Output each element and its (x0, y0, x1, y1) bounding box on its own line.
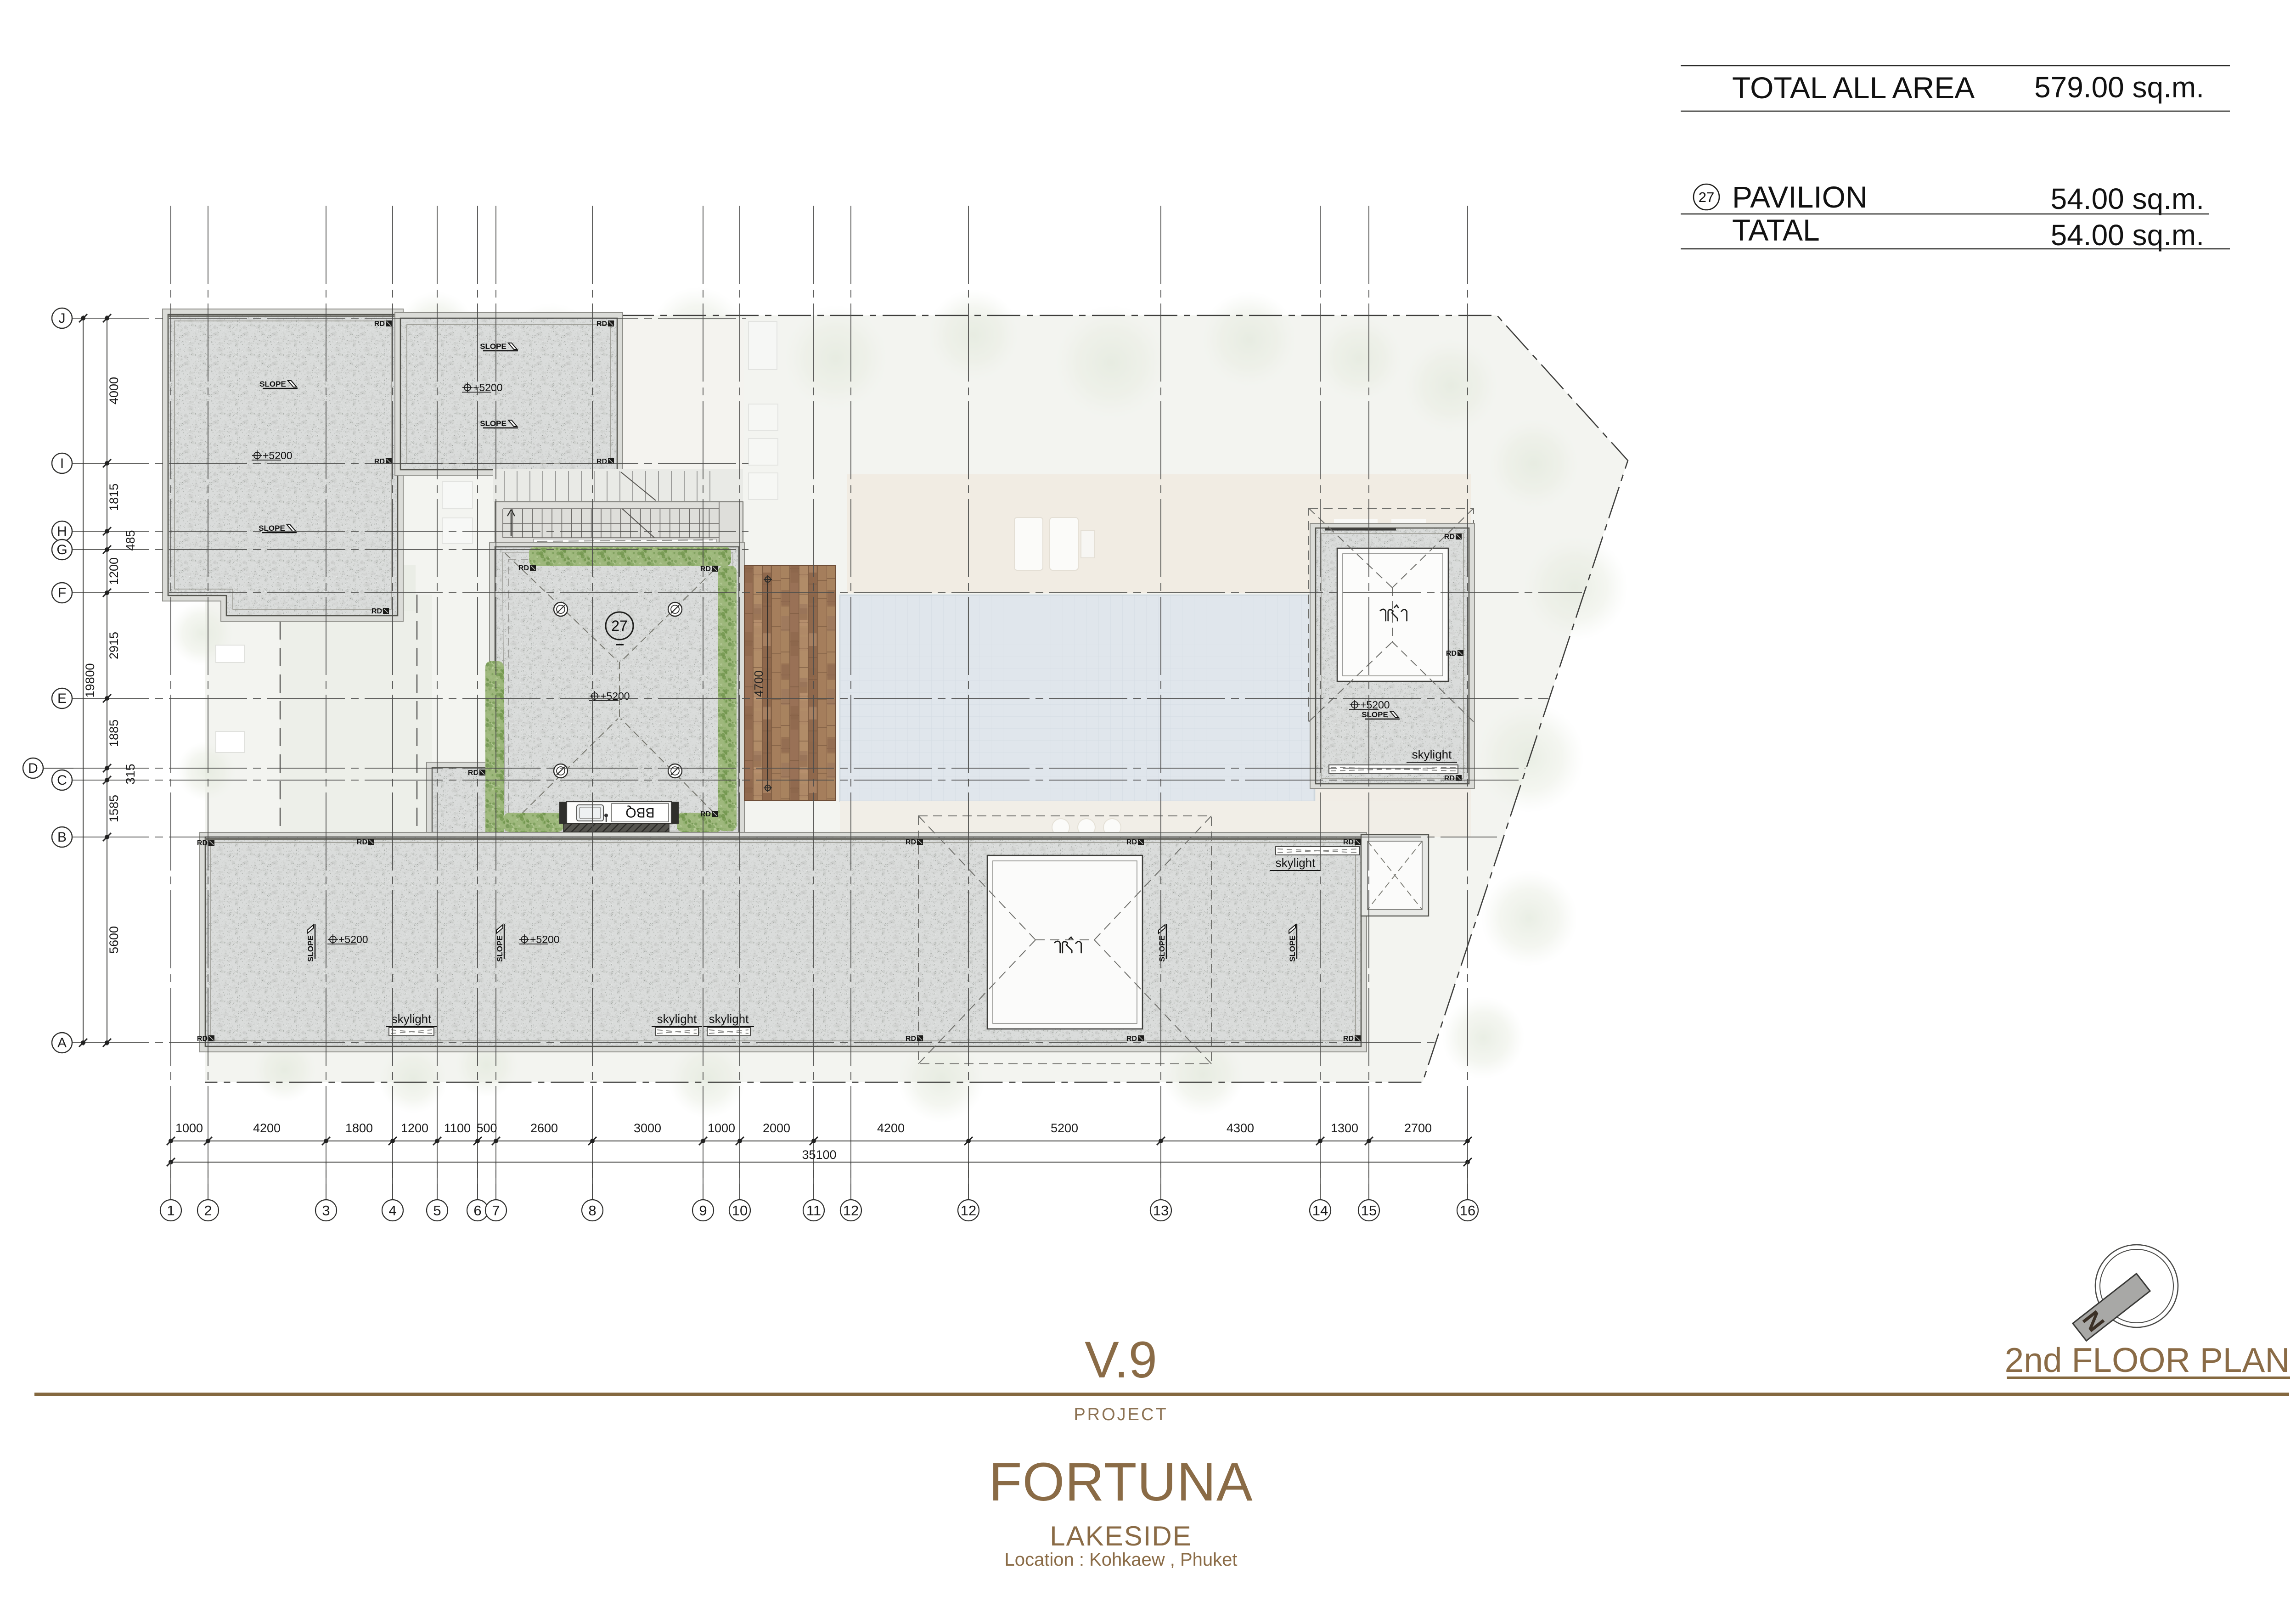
svg-text:RD: RD (1343, 1035, 1354, 1043)
svg-text:SLOPE: SLOPE (306, 935, 315, 962)
svg-text:15: 15 (1361, 1202, 1377, 1219)
svg-text:2: 2 (204, 1202, 212, 1219)
svg-text:500: 500 (476, 1121, 497, 1135)
svg-text:PAVILION: PAVILION (1732, 180, 1868, 214)
svg-text:4200: 4200 (253, 1121, 281, 1135)
svg-text:F: F (58, 585, 66, 601)
svg-text:FORTUNA: FORTUNA (989, 1452, 1253, 1512)
svg-text:C: C (57, 773, 67, 788)
svg-text:RD: RD (1444, 533, 1455, 541)
svg-text:RD: RD (518, 564, 529, 572)
svg-text:skylight: skylight (1276, 856, 1316, 870)
svg-text:RD: RD (374, 320, 385, 328)
svg-text:+5200: +5200 (338, 933, 368, 945)
svg-text:V.9: V.9 (1085, 1331, 1157, 1388)
svg-text:10: 10 (732, 1202, 748, 1219)
svg-text:1200: 1200 (401, 1121, 428, 1135)
svg-text:RD: RD (197, 839, 208, 847)
svg-text:13: 13 (1153, 1202, 1169, 1219)
svg-text:12: 12 (961, 1202, 976, 1219)
svg-text:1000: 1000 (175, 1121, 203, 1135)
svg-text:4000: 4000 (107, 377, 121, 405)
svg-text:SLOPE: SLOPE (1362, 710, 1388, 719)
svg-text:35100: 35100 (802, 1148, 836, 1162)
svg-text:SLOPE: SLOPE (495, 935, 504, 962)
svg-text:2000: 2000 (763, 1121, 790, 1135)
svg-text:RD: RD (468, 769, 478, 777)
svg-text:19800: 19800 (83, 663, 97, 697)
svg-text:5200: 5200 (1051, 1121, 1078, 1135)
svg-text:315: 315 (124, 764, 137, 784)
svg-text:54.00 sq.m.: 54.00 sq.m. (2051, 182, 2204, 215)
svg-text:4200: 4200 (877, 1121, 905, 1135)
svg-text:579.00 sq.m.: 579.00 sq.m. (2034, 71, 2204, 104)
svg-text:SLOPE: SLOPE (1158, 935, 1166, 962)
svg-text:Location : Kohkaew , Phuket: Location : Kohkaew , Phuket (1005, 1550, 1238, 1570)
svg-text:2600: 2600 (530, 1121, 558, 1135)
svg-text:D: D (28, 761, 38, 776)
svg-text:TOTAL ALL AREA: TOTAL ALL AREA (1732, 71, 1975, 105)
svg-text:skylight: skylight (657, 1012, 697, 1026)
svg-text:I: I (60, 456, 64, 471)
svg-text:RD: RD (1343, 838, 1354, 846)
svg-text:1800: 1800 (345, 1121, 373, 1135)
svg-text:RD: RD (374, 458, 385, 466)
svg-text:RD: RD (700, 565, 711, 573)
svg-text:1000: 1000 (708, 1121, 735, 1135)
svg-text:4700: 4700 (752, 670, 765, 697)
svg-text:RD: RD (906, 838, 916, 846)
svg-text:RD: RD (1446, 650, 1457, 657)
svg-text:RD: RD (197, 1035, 208, 1043)
svg-text:8: 8 (588, 1202, 596, 1219)
svg-text:RD: RD (700, 810, 711, 818)
svg-text:skylight: skylight (709, 1012, 749, 1026)
svg-text:2700: 2700 (1404, 1121, 1432, 1135)
svg-text:+5200: +5200 (1360, 699, 1390, 711)
svg-text:+5200: +5200 (530, 933, 560, 945)
svg-text:RD: RD (371, 607, 382, 615)
svg-text:RD: RD (906, 1035, 916, 1043)
svg-text:RD: RD (597, 458, 607, 466)
svg-text:H: H (57, 524, 67, 539)
svg-text:BBQ: BBQ (625, 805, 654, 820)
svg-text:skylight: skylight (392, 1012, 432, 1026)
svg-text:1: 1 (167, 1202, 174, 1219)
svg-text:1885: 1885 (107, 719, 121, 747)
svg-text:RD: RD (1126, 838, 1137, 846)
svg-text:3: 3 (322, 1202, 330, 1219)
svg-text:skylight: skylight (1412, 747, 1452, 761)
svg-text:G: G (56, 542, 67, 557)
svg-text:RD: RD (1444, 775, 1455, 782)
svg-text:J: J (59, 311, 66, 326)
svg-text:54.00 sq.m.: 54.00 sq.m. (2051, 219, 2204, 252)
svg-text:TATAL: TATAL (1732, 213, 1820, 247)
svg-text:1100: 1100 (444, 1121, 471, 1135)
svg-text:1585: 1585 (107, 795, 121, 822)
svg-text:1200: 1200 (107, 557, 121, 585)
svg-text:E: E (57, 691, 67, 706)
svg-text:12: 12 (843, 1202, 859, 1219)
svg-text:16: 16 (1460, 1202, 1475, 1219)
svg-text:SLOPE: SLOPE (1288, 935, 1297, 962)
svg-text:14: 14 (1312, 1202, 1328, 1219)
svg-text:27: 27 (611, 618, 628, 634)
svg-text:1815: 1815 (107, 483, 121, 511)
svg-text:6: 6 (473, 1202, 481, 1219)
svg-text:485: 485 (124, 530, 137, 551)
svg-text:11: 11 (806, 1202, 821, 1219)
svg-text:RD: RD (597, 320, 607, 328)
svg-text:SLOPE: SLOPE (259, 380, 286, 388)
svg-text:7: 7 (492, 1202, 500, 1219)
svg-text:2915: 2915 (107, 632, 121, 659)
svg-text:4: 4 (388, 1202, 396, 1219)
svg-text:27: 27 (1699, 189, 1714, 205)
svg-text:B: B (57, 830, 67, 845)
svg-text:9: 9 (699, 1202, 707, 1219)
svg-text:4300: 4300 (1227, 1121, 1254, 1135)
svg-text:2nd FLOOR PLAN: 2nd FLOOR PLAN (2004, 1341, 2290, 1379)
svg-text:PROJECT: PROJECT (1074, 1405, 1168, 1424)
svg-text:RD: RD (357, 838, 367, 846)
svg-text:+5200: +5200 (263, 450, 293, 461)
svg-text:A: A (57, 1035, 67, 1051)
svg-text:5600: 5600 (107, 926, 121, 954)
svg-text:1300: 1300 (1331, 1121, 1358, 1135)
svg-text:LAKESIDE: LAKESIDE (1050, 1521, 1192, 1551)
svg-text:RD: RD (1126, 1035, 1137, 1043)
svg-text:SLOPE: SLOPE (480, 342, 506, 351)
svg-text:+5200: +5200 (600, 690, 630, 702)
svg-text:3000: 3000 (634, 1121, 661, 1135)
svg-text:SLOPE: SLOPE (480, 419, 506, 428)
svg-text:5: 5 (433, 1202, 441, 1219)
